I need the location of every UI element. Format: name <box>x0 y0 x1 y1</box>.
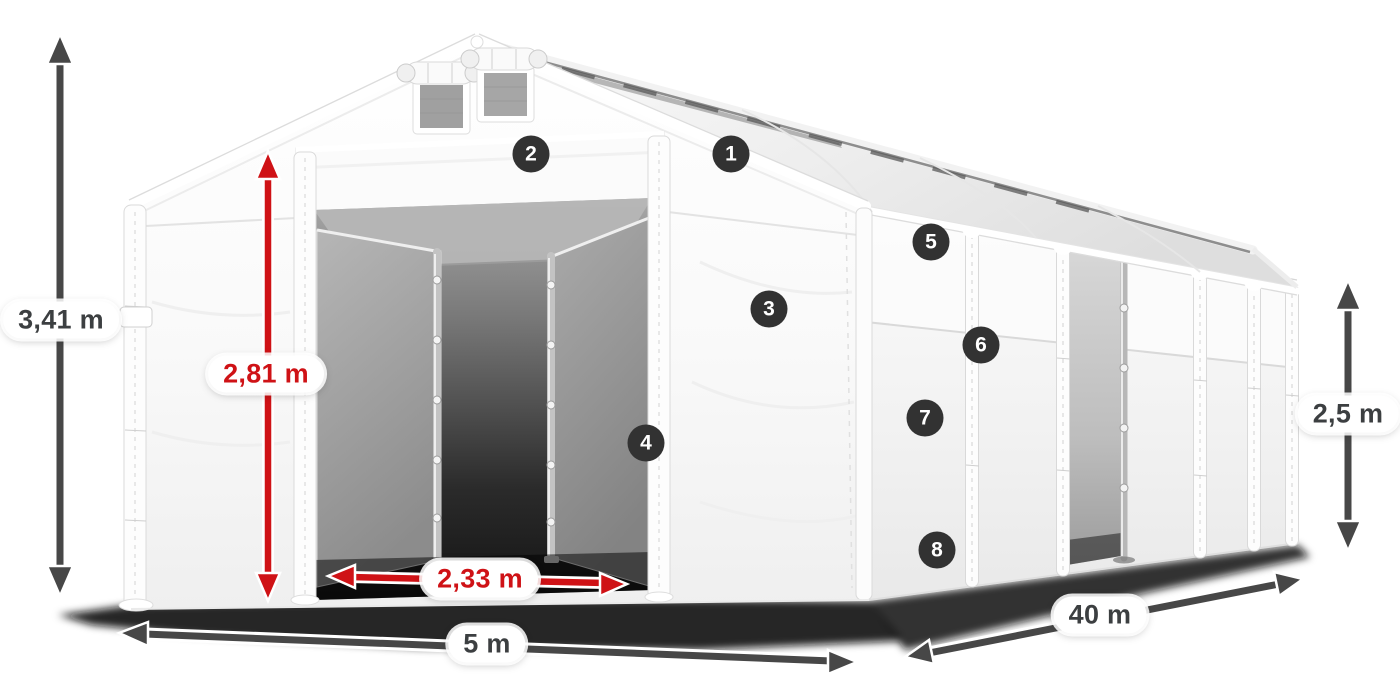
feature-marker-3[interactable]: 3 <box>751 291 788 328</box>
left-door-leaf <box>317 230 441 587</box>
right-door-leaf <box>544 218 649 586</box>
dimension-label-length: 40 m <box>1054 596 1147 633</box>
feature-marker-4[interactable]: 4 <box>628 425 665 462</box>
feature-marker-8[interactable]: 8 <box>919 532 956 569</box>
entrance-opening <box>308 198 652 600</box>
feature-marker-1[interactable]: 1 <box>713 136 750 173</box>
dimension-label-side-wall-height: 2,5 m <box>1298 395 1399 432</box>
feature-marker-2[interactable]: 2 <box>513 136 550 173</box>
dimension-label-front-width: 5 m <box>448 625 525 662</box>
feature-marker-5[interactable]: 5 <box>913 224 950 261</box>
feature-marker-7[interactable]: 7 <box>907 400 944 437</box>
tent-illustration-canvas <box>0 0 1400 700</box>
dimension-label-entrance-width: 2,33 m <box>422 560 538 597</box>
dimension-label-entrance-height: 2,81 m <box>208 355 324 392</box>
side-entrance-opening <box>1063 247 1135 565</box>
feature-marker-6[interactable]: 6 <box>963 327 1000 364</box>
tent-dimensions-diagram: 3,41 m 2,81 m 2,33 m 5 m 40 m 2,5 m 1 2 … <box>0 0 1400 700</box>
dimension-label-total-height: 3,41 m <box>3 301 119 338</box>
